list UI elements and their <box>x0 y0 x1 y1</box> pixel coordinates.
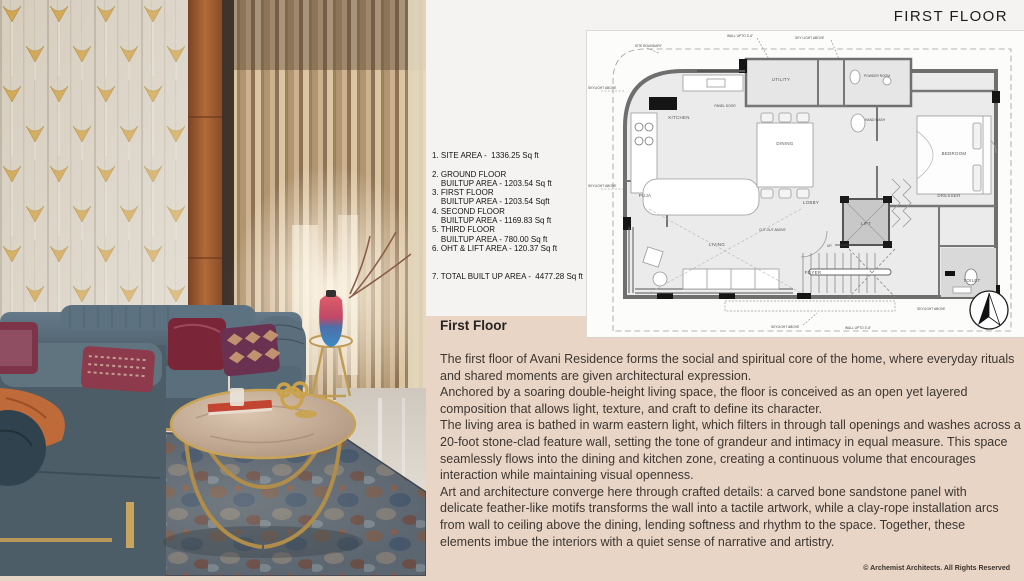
area-statement-line <box>432 253 584 262</box>
label-cutout-above: CUT-OUT ABOVE <box>759 228 786 232</box>
description-line: seamlessly flows into the dining and kit… <box>440 451 1018 468</box>
room-label-lift: LIFT <box>861 221 871 226</box>
section-heading: First Floor <box>440 318 507 333</box>
floor-plan: KITCHEN UTILITY PANEL DOOR POWDER ROOM H… <box>586 30 1024 338</box>
description-line: elements imbue the interiors with a quie… <box>440 534 1018 551</box>
room-label-hand-wash: HAND WASH <box>865 118 886 122</box>
area-statement-line: 2. GROUND FLOOR <box>432 170 584 179</box>
label-wall-upto-top: WALL UPTO 3'-6" <box>727 34 754 38</box>
wood-pillar <box>188 0 234 352</box>
area-statement-line: BUILTUP AREA - 1203.54 Sq ft <box>432 179 584 188</box>
label-skylight-left-1: SKYLIGHT ABOVE <box>588 86 617 90</box>
room-label-lobby: LOBBY <box>803 200 819 205</box>
description-line: Anchored by a soaring double-height livi… <box>440 384 1018 401</box>
label-skylight-bottom-1: SKYLIGHT ABOVE <box>771 325 800 329</box>
north-arrow <box>970 291 1008 329</box>
room-label-dresser: DRESSER <box>937 193 960 198</box>
room-label-dining: DINING <box>776 141 793 146</box>
room-label-puja: PUJA <box>639 193 651 198</box>
room-label-powder-room: POWDER ROOM <box>864 74 890 78</box>
description-line: The first floor of Avani Residence forms… <box>440 351 1018 368</box>
description-line: composition that allows light, texture, … <box>440 401 1018 418</box>
room-label-living: LIVING <box>709 242 725 247</box>
description-line: The living area is bathed in warm easter… <box>440 417 1018 434</box>
area-statement-line <box>432 263 584 272</box>
description-text: The first floor of Avani Residence forms… <box>440 351 1018 550</box>
description-line: 20-foot stone-clad feature wall, setting… <box>440 434 1018 451</box>
label-skylight-left-2: SKYLIGHT ABOVE <box>588 184 617 188</box>
description-line: interaction while maintaining visual ope… <box>440 467 1018 484</box>
page-title: FIRST FLOOR <box>894 8 1008 25</box>
area-statement-line: 7. TOTAL BUILT UP AREA - 4477.28 Sq ft <box>432 272 584 281</box>
copyright: © Archemist Architects. All Rights Reser… <box>863 565 1010 572</box>
label-skylight-bottom-2: SKYLIGHT ABOVE <box>917 307 946 311</box>
area-statement: 1. SITE AREA - 1336.25 Sq ft 2. GROUND F… <box>432 151 584 281</box>
room-label-foyer: FOYER <box>805 270 822 275</box>
area-statement-line <box>432 160 584 169</box>
skylight-strip <box>725 301 895 311</box>
area-statement-line: BUILTUP AREA - 1169.83 Sq ft <box>432 216 584 225</box>
area-statement-line: BUILTUP AREA - 1203.54 Sqft <box>432 197 584 206</box>
label-site-boundary: SITE BOUNDARY <box>635 44 663 48</box>
area-statement-line: BUILTUP AREA - 780.00 Sq ft <box>432 235 584 244</box>
room-label-kitchen: KITCHEN <box>668 115 689 120</box>
description-line: and shared moments are given architectur… <box>440 368 1018 385</box>
label-panel-door: PANEL DOOR <box>714 104 736 108</box>
label-up: UP. <box>827 244 832 248</box>
area-statement-line: 1. SITE AREA - 1336.25 Sq ft <box>432 151 584 160</box>
area-statement-line: 6. OHT & LIFT AREA - 120.37 Sq ft <box>432 244 584 253</box>
label-skylight-top: SKY LIGHT ABOVE <box>795 36 825 40</box>
interior-photo <box>0 0 426 576</box>
room-label-utility: UTILITY <box>772 77 790 82</box>
room-label-toilet: TOILET <box>963 278 980 283</box>
description-line: delicate feather-like motifs transforms … <box>440 500 1018 517</box>
area-statement-line: 5. THIRD FLOOR <box>432 225 584 234</box>
room-label-bedroom: BEDROOM <box>942 151 967 156</box>
label-wall-upto-bottom: WALL UPTO 3'-6" <box>845 326 872 330</box>
area-statement-line: 4. SECOND FLOOR <box>432 207 584 216</box>
area-statement-line: 3. FIRST FLOOR <box>432 188 584 197</box>
description-line: Art and architecture converge here throu… <box>440 484 1018 501</box>
description-line: from wall to ceiling above the dining, l… <box>440 517 1018 534</box>
